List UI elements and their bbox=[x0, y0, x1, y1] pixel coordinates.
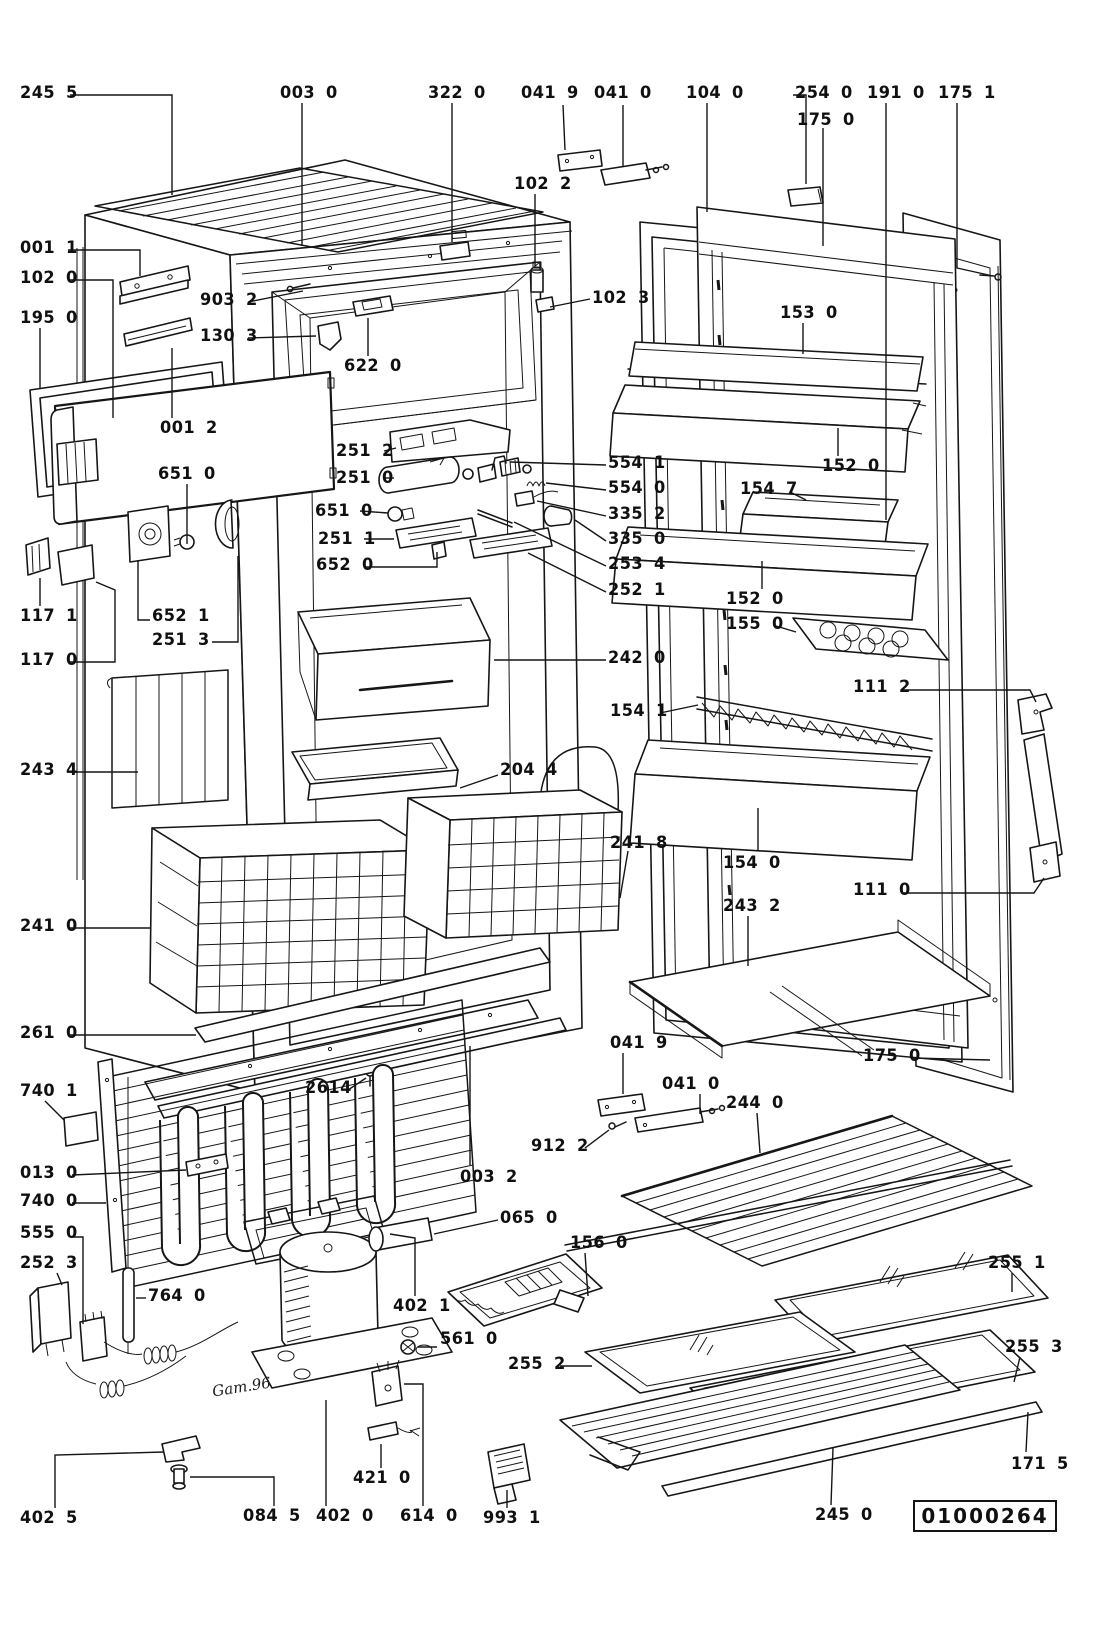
door-cap-254 bbox=[788, 187, 823, 206]
screw-912-2 bbox=[609, 1122, 626, 1129]
part-label-651-0: 651 0 bbox=[158, 466, 216, 483]
part-421-0 bbox=[368, 1422, 420, 1440]
part-label-912-2: 912 2 bbox=[531, 1138, 589, 1155]
part-label-251-1: 251 1 bbox=[318, 531, 376, 548]
part-label-622-0: 622 0 bbox=[344, 358, 402, 375]
part-label-041-0: 041 0 bbox=[662, 1076, 720, 1093]
part-label-251-0: 251 0 bbox=[336, 470, 394, 487]
screw-561-0 bbox=[401, 1340, 415, 1354]
part-label-154-7: 154 7 bbox=[740, 481, 798, 498]
part-label-614-0: 614 0 bbox=[400, 1508, 458, 1525]
diagram-number: 01000264 bbox=[921, 1504, 1048, 1528]
part-label-402-5: 402 5 bbox=[20, 1510, 78, 1527]
bracket-041-0-bottom bbox=[635, 1106, 725, 1133]
part-label-041-9: 041 9 bbox=[610, 1035, 668, 1052]
part-label-903-2: 903 2 bbox=[200, 292, 258, 309]
part-label-102-2: 102 2 bbox=[514, 176, 572, 193]
part-label-003-0: 003 0 bbox=[280, 85, 338, 102]
part-label-241-0: 241 0 bbox=[20, 918, 78, 935]
part-label-652-0: 652 0 bbox=[316, 557, 374, 574]
part-label-335-2: 335 2 bbox=[608, 506, 666, 523]
part-label-154-1: 154 1 bbox=[610, 703, 668, 720]
part-label-261-0: 261 0 bbox=[20, 1025, 78, 1042]
part-label-102-0: 102 0 bbox=[20, 270, 78, 287]
diagram-artwork bbox=[0, 0, 1100, 1647]
part-label-243-4: 243 4 bbox=[20, 762, 78, 779]
part-label-555-0: 555 0 bbox=[20, 1225, 78, 1242]
part-label-253-4: 253 4 bbox=[608, 556, 666, 573]
part-label-003-2: 003 2 bbox=[460, 1169, 518, 1186]
crisper-box-242 bbox=[298, 598, 490, 720]
part-label-251-2: 251 2 bbox=[336, 443, 394, 460]
cap-102-2 bbox=[531, 262, 543, 292]
part-label-111-0: 111 0 bbox=[853, 882, 911, 899]
part-label-244-0: 244 0 bbox=[726, 1095, 784, 1112]
part-label-117-1: 117 1 bbox=[20, 608, 78, 625]
part-label-104-0: 104 0 bbox=[686, 85, 744, 102]
part-label-651-0: 651 0 bbox=[315, 503, 373, 520]
wire-shelf-244-0 bbox=[565, 1116, 1032, 1266]
part-label-554-1: 554 1 bbox=[608, 455, 666, 472]
part-117-0 bbox=[58, 545, 94, 585]
part-label-130-3: 130 3 bbox=[200, 328, 258, 345]
part-label-152-0: 152 0 bbox=[822, 458, 880, 475]
part-label-117-0: 117 0 bbox=[20, 652, 78, 669]
part-label-740-0: 740 0 bbox=[20, 1193, 78, 1210]
plate-041-9-top bbox=[558, 150, 602, 171]
part-label-322-0: 322 0 bbox=[428, 85, 486, 102]
part-label-2614: 2614 bbox=[305, 1080, 352, 1097]
part-label-254-0: 254 0 bbox=[795, 85, 853, 102]
part-label-065-0: 065 0 bbox=[500, 1210, 558, 1227]
part-label-252-3: 252 3 bbox=[20, 1255, 78, 1272]
part-label-402-0: 402 0 bbox=[316, 1508, 374, 1525]
part-label-175-0: 175 0 bbox=[797, 112, 855, 129]
part-label-171-5: 171 5 bbox=[1011, 1456, 1069, 1473]
clip-402-5 bbox=[162, 1436, 200, 1462]
part-label-084-5: 084 5 bbox=[243, 1508, 301, 1525]
part-label-152-0: 152 0 bbox=[726, 591, 784, 608]
part-label-153-0: 153 0 bbox=[780, 305, 838, 322]
part-label-243-2: 243 2 bbox=[723, 898, 781, 915]
part-label-175-0: 175 0 bbox=[863, 1048, 921, 1065]
part-label-191-0: 191 0 bbox=[867, 85, 925, 102]
part-label-156-0: 156 0 bbox=[570, 1235, 628, 1252]
diagram-number-box: 01000264 bbox=[913, 1500, 1057, 1532]
part-label-155-0: 155 0 bbox=[726, 616, 784, 633]
part-label-255-2: 255 2 bbox=[508, 1356, 566, 1373]
part-label-001-1: 001 1 bbox=[20, 240, 78, 257]
part-label-195-0: 195 0 bbox=[20, 310, 78, 327]
part-label-255-1: 255 1 bbox=[988, 1255, 1046, 1272]
part-label-764-0: 764 0 bbox=[148, 1288, 206, 1305]
part-label-255-3: 255 3 bbox=[1005, 1339, 1063, 1356]
part-label-561-0: 561 0 bbox=[440, 1331, 498, 1348]
part-label-204-4: 204 4 bbox=[500, 762, 558, 779]
part-label-421-0: 421 0 bbox=[353, 1470, 411, 1487]
part-label-041-0: 041 0 bbox=[594, 85, 652, 102]
parts-diagram-page: 245 5003 0322 0041 9041 0104 0254 0175 0… bbox=[0, 0, 1100, 1647]
part-label-242-0: 242 0 bbox=[608, 650, 666, 667]
bracket-041-0-top bbox=[601, 163, 669, 185]
door-handle bbox=[1018, 694, 1062, 882]
scraper-993-1 bbox=[488, 1444, 530, 1504]
part-label-111-2: 111 2 bbox=[853, 679, 911, 696]
stud-084-5 bbox=[171, 1465, 187, 1489]
part-label-241-8: 241 8 bbox=[610, 835, 668, 852]
part-label-402-1: 402 1 bbox=[393, 1298, 451, 1315]
plate-041-9-bottom bbox=[598, 1094, 645, 1116]
part-label-740-1: 740 1 bbox=[20, 1083, 78, 1100]
part-label-335-0: 335 0 bbox=[608, 531, 666, 548]
part-label-993-1: 993 1 bbox=[483, 1510, 541, 1527]
part-label-251-3: 251 3 bbox=[152, 632, 210, 649]
part-label-001-2: 001 2 bbox=[160, 420, 218, 437]
part-117-1 bbox=[26, 538, 50, 575]
part-label-175-1: 175 1 bbox=[938, 85, 996, 102]
cap-102-3 bbox=[536, 297, 554, 312]
part-label-245-0: 245 0 bbox=[815, 1507, 873, 1524]
part-label-154-0: 154 0 bbox=[723, 855, 781, 872]
part-label-252-1: 252 1 bbox=[608, 582, 666, 599]
part-label-013-0: 013 0 bbox=[20, 1165, 78, 1182]
part-label-041-9: 041 9 bbox=[521, 85, 579, 102]
ice-tray-156-0 bbox=[448, 1254, 602, 1326]
door-bin-154-0 bbox=[630, 740, 930, 860]
part-label-245-5: 245 5 bbox=[20, 85, 78, 102]
part-label-652-1: 652 1 bbox=[152, 608, 210, 625]
part-label-554-0: 554 0 bbox=[608, 480, 666, 497]
part-label-102-3: 102 3 bbox=[592, 290, 650, 307]
